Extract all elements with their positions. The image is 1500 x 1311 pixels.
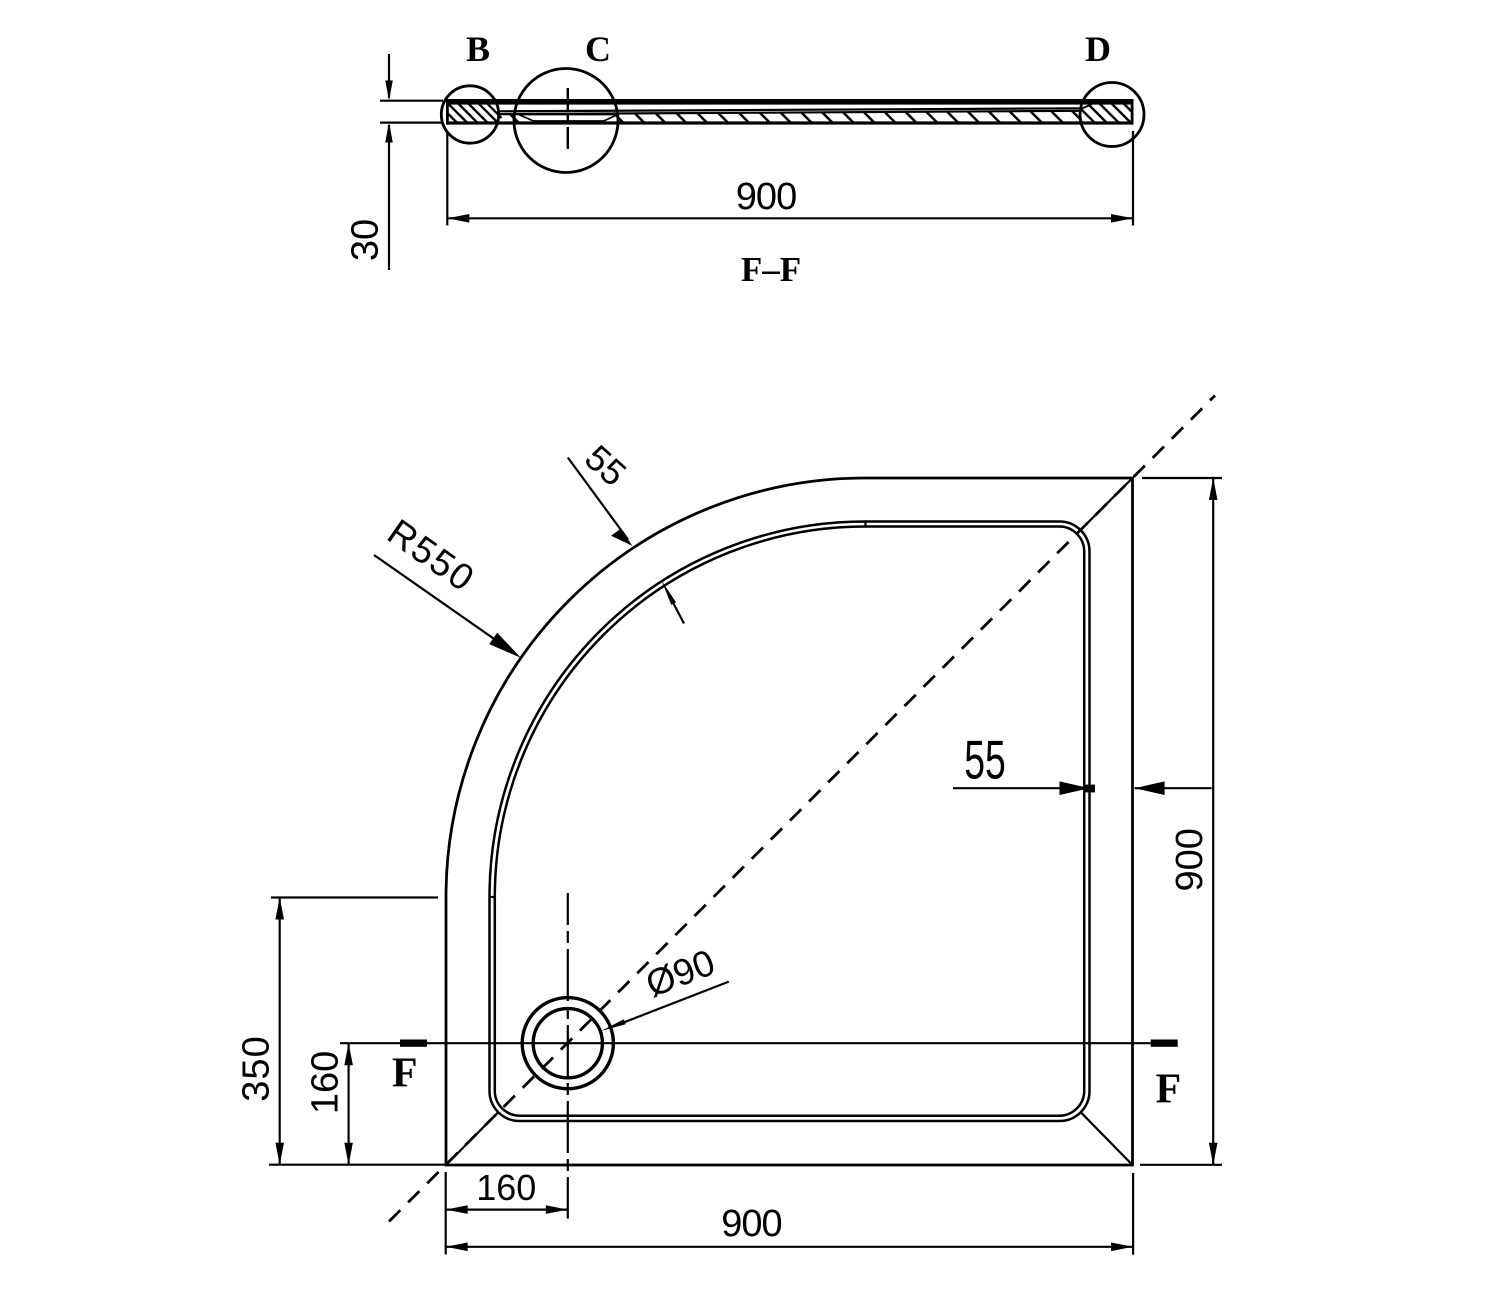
svg-text:350: 350 [236, 1035, 278, 1101]
svg-text:160: 160 [305, 1051, 347, 1114]
svg-text:160: 160 [476, 1167, 536, 1208]
svg-text:900: 900 [736, 176, 796, 218]
svg-text:B: B [466, 29, 490, 69]
svg-text:D: D [1085, 29, 1111, 69]
svg-text:30: 30 [345, 219, 387, 261]
svg-text:55: 55 [964, 728, 1006, 790]
svg-text:F–F: F–F [741, 250, 801, 289]
svg-text:900: 900 [1169, 828, 1211, 891]
svg-text:F: F [1155, 1067, 1181, 1113]
svg-text:F: F [392, 1050, 418, 1096]
svg-text:900: 900 [721, 1203, 781, 1245]
svg-text:C: C [585, 29, 611, 69]
